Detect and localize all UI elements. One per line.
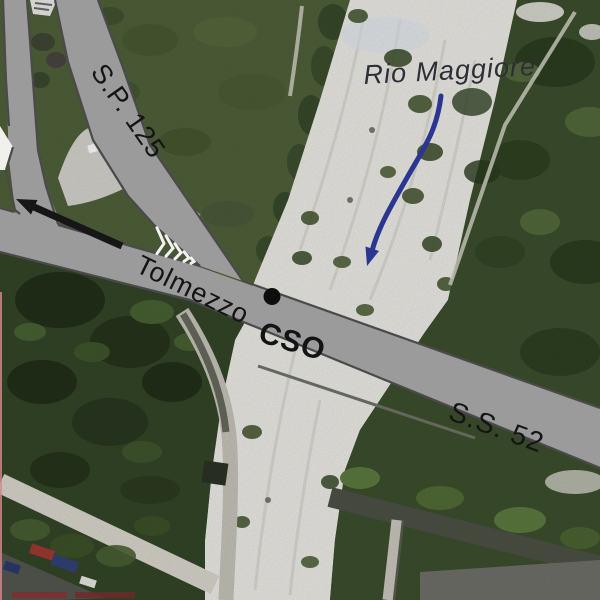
cso-site-dot [264, 288, 281, 305]
aerial-map: S.P. 125 Tolmezzo CSO S.S. 52 Rio Maggio… [0, 0, 600, 600]
map-canvas: S.P. 125 Tolmezzo CSO S.S. 52 Rio Maggio… [0, 0, 600, 600]
left-border-artifact [0, 292, 2, 600]
